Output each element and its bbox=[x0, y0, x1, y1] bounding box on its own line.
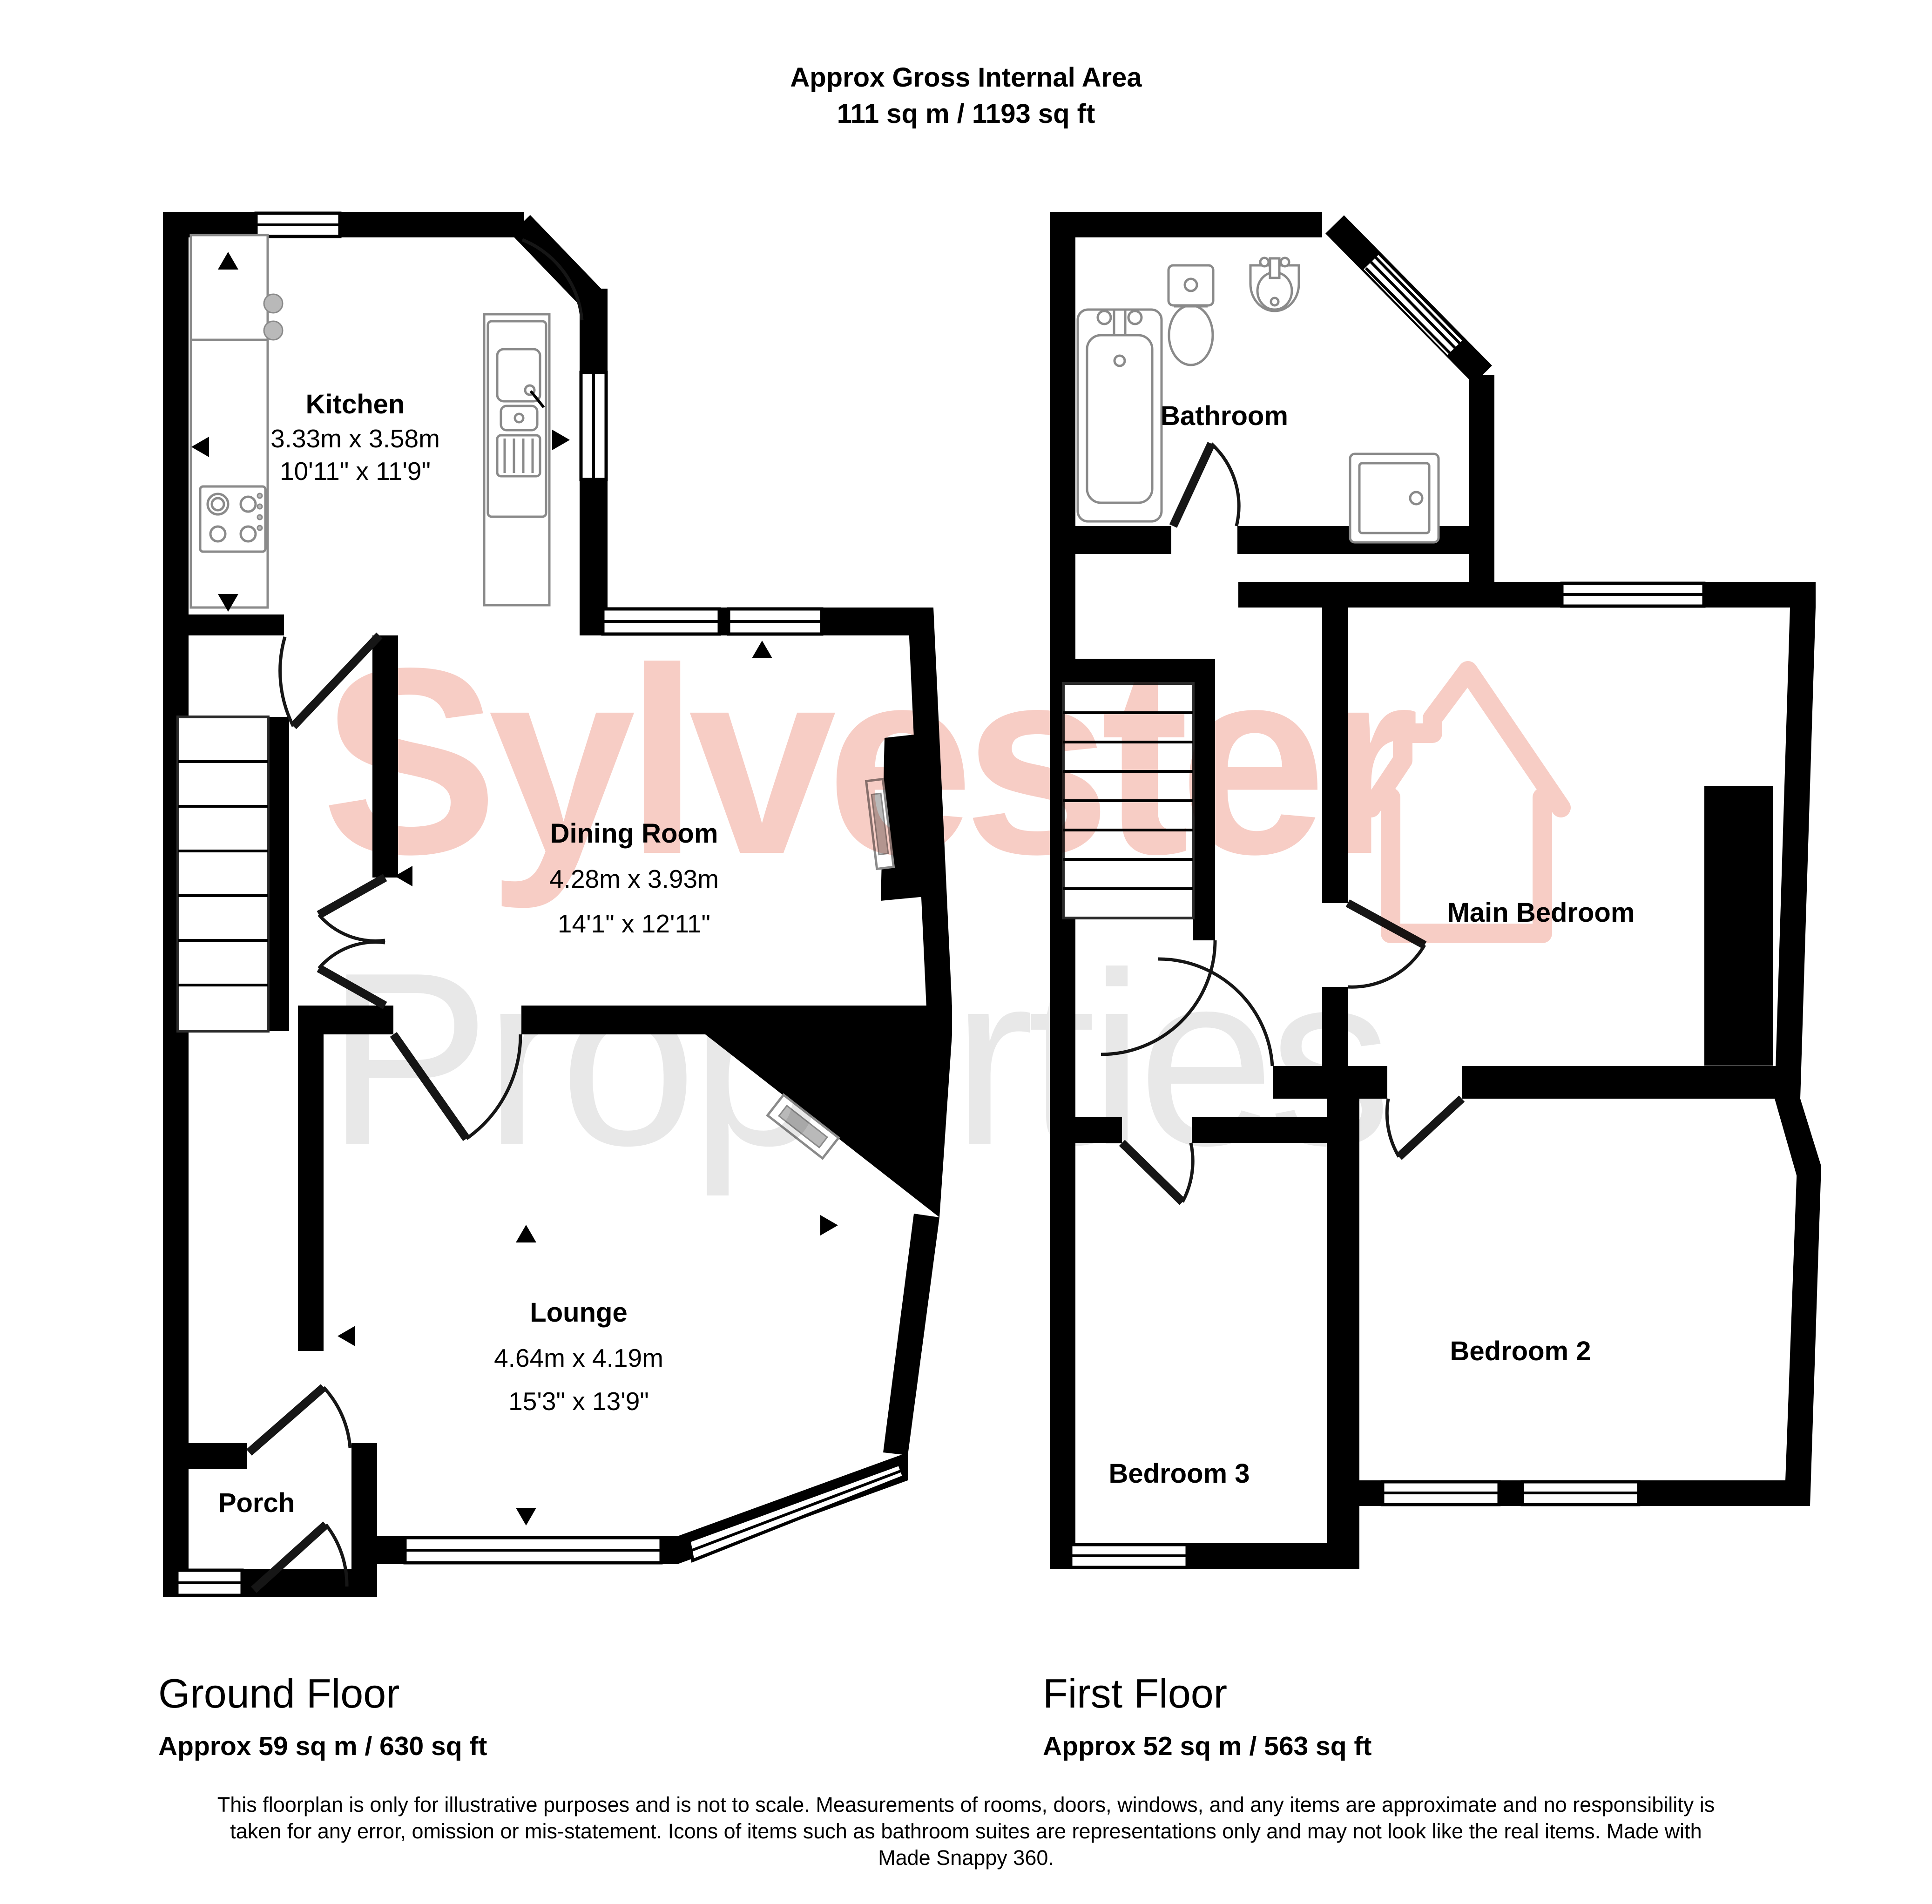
window bbox=[603, 609, 719, 634]
svg-text:Bathroom: Bathroom bbox=[1161, 401, 1288, 431]
window bbox=[1383, 1482, 1499, 1505]
arrow-up-icon bbox=[752, 641, 772, 658]
ground-floor-caption: Ground Floor Approx 59 sq m / 630 sq ft bbox=[158, 1670, 810, 1762]
door-arc bbox=[1211, 444, 1239, 526]
svg-text:Bedroom 2: Bedroom 2 bbox=[1450, 1336, 1591, 1366]
door-arc bbox=[324, 1387, 350, 1448]
arrow-right-icon bbox=[552, 430, 570, 450]
shower-icon bbox=[1350, 454, 1439, 542]
staircase bbox=[178, 717, 268, 1031]
svg-text:4.28m x 3.93m: 4.28m x 3.93m bbox=[549, 864, 719, 893]
svg-text:4.64m x 4.19m: 4.64m x 4.19m bbox=[494, 1344, 663, 1372]
door-arc bbox=[466, 1034, 520, 1139]
window bbox=[581, 372, 606, 479]
svg-text:Lounge: Lounge bbox=[530, 1297, 627, 1328]
room-label-bedroom-3: Bedroom 3 bbox=[1109, 1458, 1250, 1489]
arrow-left-icon bbox=[338, 1326, 355, 1346]
svg-text:Porch: Porch bbox=[218, 1488, 295, 1518]
door-arc bbox=[319, 915, 385, 941]
room-label-bathroom: Bathroom bbox=[1161, 401, 1288, 431]
room-label-bedroom-2: Bedroom 2 bbox=[1450, 1336, 1591, 1366]
door-arc bbox=[319, 942, 385, 968]
svg-text:Dining Room: Dining Room bbox=[550, 818, 718, 849]
door-arc bbox=[1387, 1099, 1399, 1157]
door-arc bbox=[1348, 945, 1425, 987]
window bbox=[729, 609, 822, 634]
room-label-kitchen: Kitchen 3.33m x 3.58m 10'11" x 11'9" bbox=[270, 389, 440, 486]
floor-area: Approx 59 sq m / 630 sq ft bbox=[158, 1731, 810, 1762]
window bbox=[1366, 256, 1460, 354]
gross-area-title: Approx Gross Internal Area bbox=[0, 60, 1932, 96]
svg-text:Bedroom 3: Bedroom 3 bbox=[1109, 1458, 1250, 1489]
ground-floor-plan: Kitchen 3.33m x 3.58m 10'11" x 11'9" Din… bbox=[140, 196, 954, 1620]
window bbox=[1522, 1482, 1639, 1505]
toilet-icon bbox=[1169, 265, 1213, 365]
first-floor-caption: First Floor Approx 52 sq m / 563 sq ft bbox=[1043, 1670, 1695, 1762]
gross-area-value: 111 sq m / 1193 sq ft bbox=[0, 96, 1932, 132]
room-label-main-bedroom: Main Bedroom bbox=[1447, 898, 1635, 928]
floor-area: Approx 52 sq m / 563 sq ft bbox=[1043, 1731, 1695, 1762]
first-floor-plan: Bathroom Main Bedroom Bedroom 2 Bedroom … bbox=[1024, 196, 1839, 1620]
window bbox=[256, 213, 340, 236]
svg-text:10'11" x 11'9": 10'11" x 11'9" bbox=[280, 457, 431, 486]
arrow-right-icon bbox=[820, 1215, 838, 1236]
window bbox=[405, 1538, 661, 1563]
room-label-dining-room: Dining Room 4.28m x 3.93m 14'1" x 12'11" bbox=[549, 818, 719, 938]
window bbox=[689, 1464, 904, 1560]
room-label-porch: Porch bbox=[218, 1488, 295, 1518]
bath-icon bbox=[1078, 310, 1162, 521]
door-arc bbox=[280, 637, 293, 726]
window bbox=[1071, 1545, 1187, 1567]
hob-icon bbox=[200, 486, 265, 552]
door-arc bbox=[1101, 940, 1215, 1054]
door-arc bbox=[1182, 1143, 1193, 1202]
svg-text:14'1" x 12'11": 14'1" x 12'11" bbox=[558, 909, 710, 938]
staircase bbox=[1063, 683, 1193, 918]
door-arc bbox=[1158, 959, 1272, 1066]
window bbox=[177, 1570, 242, 1595]
svg-text:3.33m x 3.58m: 3.33m x 3.58m bbox=[270, 424, 440, 453]
disclaimer-text: This floorplan is only for illustrative … bbox=[216, 1791, 1716, 1871]
svg-text:15'3" x 13'9": 15'3" x 13'9" bbox=[508, 1387, 649, 1416]
floor-name: First Floor bbox=[1043, 1670, 1695, 1717]
svg-text:Main Bedroom: Main Bedroom bbox=[1447, 898, 1635, 928]
kitchen-sink-icon bbox=[488, 321, 546, 517]
floor-name: Ground Floor bbox=[158, 1670, 810, 1717]
room-label-lounge: Lounge 4.64m x 4.19m 15'3" x 13'9" bbox=[494, 1297, 663, 1416]
arrow-down-icon bbox=[516, 1508, 536, 1526]
sink-icon bbox=[1250, 258, 1299, 311]
svg-text:Kitchen: Kitchen bbox=[306, 389, 405, 419]
window bbox=[1562, 583, 1704, 606]
page-title: Approx Gross Internal Area 111 sq m / 11… bbox=[0, 60, 1932, 132]
arrow-up-icon bbox=[516, 1225, 536, 1242]
